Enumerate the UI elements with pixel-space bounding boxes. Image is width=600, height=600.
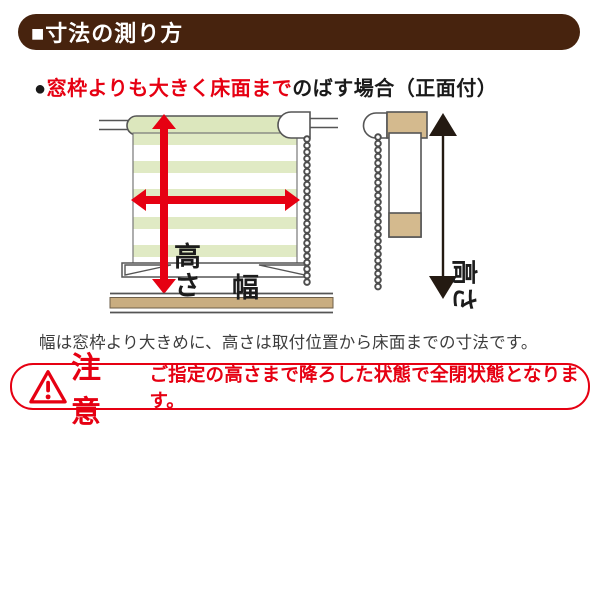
subtitle-highlight: 窓枠よりも大きく床面まで xyxy=(47,78,293,100)
measuring-diagram: 高さ 幅 高さ xyxy=(0,105,600,330)
case-subtitle: ●窓枠よりも大きく床面までのばす場合（正面付） xyxy=(34,72,497,101)
front-view-illustration xyxy=(99,112,338,313)
bottom-rail xyxy=(122,263,308,277)
roller-tube xyxy=(127,116,297,135)
section-header-bar: ■寸法の測り方 xyxy=(18,14,580,50)
caution-box: 注意 ご指定の高さまで降ろした状態で全閉状態となります。 xyxy=(10,363,590,410)
height-label-side: 高さ xyxy=(449,258,477,314)
side-view-illustration xyxy=(364,112,457,299)
page-title: ■寸法の測り方 xyxy=(31,16,183,48)
warning-triangle-icon xyxy=(28,369,68,405)
caution-label: 注意 xyxy=(71,343,129,431)
caution-message: ご指定の高さまで降ろした状態で全閉状態となります。 xyxy=(149,361,588,413)
page: ■寸法の測り方 ●窓枠よりも大きく床面までのばす場合（正面付） xyxy=(0,0,600,600)
side-bottom-frame-block xyxy=(389,213,421,237)
subtitle-rest: のばす場合（正面付） xyxy=(292,78,497,100)
floor-line xyxy=(110,294,333,313)
bullet-icon: ● xyxy=(34,78,47,100)
side-roller-cap xyxy=(364,113,387,138)
width-label-front: 幅 xyxy=(232,275,259,302)
roller-blind-diagram-svg xyxy=(0,105,600,330)
roller-end-cap xyxy=(278,112,310,138)
height-label-front: 高さ xyxy=(171,242,198,300)
